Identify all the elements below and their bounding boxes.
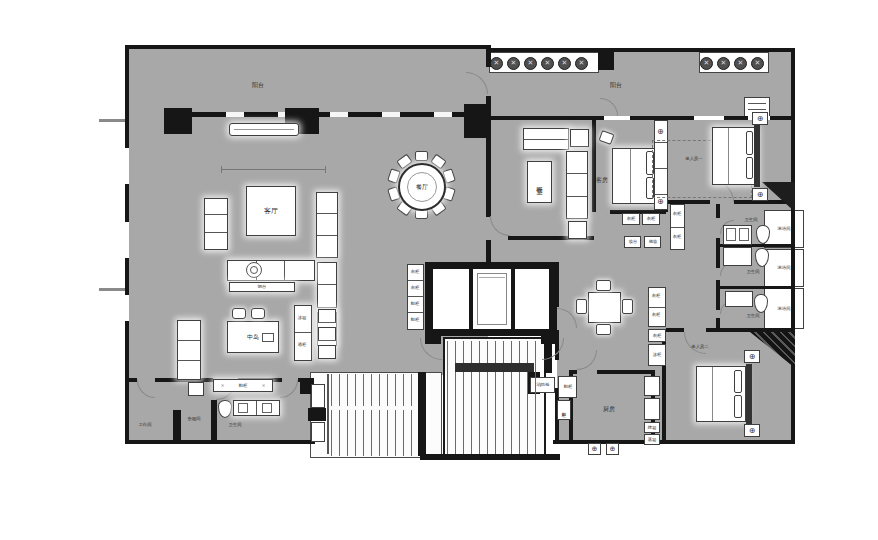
vanity-div [256, 401, 257, 415]
cabinet-line [178, 360, 200, 361]
ceiling-lamp-icon: ⊕ [657, 198, 664, 206]
pillow [734, 370, 742, 393]
shelf-line [317, 213, 337, 214]
shower-2-label: 淋浴间 [778, 266, 791, 270]
planter-icon: ✕ [717, 57, 730, 70]
elder1-headboard [754, 125, 760, 187]
dresser-2-label: 梳妆 [648, 240, 657, 244]
shower-2-inner: 淋浴间 [764, 249, 804, 287]
counter-div [284, 261, 285, 280]
column-balcony-divider [598, 48, 614, 70]
kitchen-tall-unit [644, 376, 660, 396]
wall-x488-c [486, 240, 491, 264]
steamer-label: 蒸箱 [648, 437, 657, 441]
cab-line [408, 312, 423, 313]
ceiling-lamp-icon: ⊕ [757, 115, 764, 123]
dresser-1: 妆台 [624, 236, 641, 248]
wall-top-left [125, 45, 488, 49]
ceiling-lamp-icon: ⊕ [592, 446, 598, 453]
stair-closet [311, 422, 325, 442]
living-room-label: 客厅 [264, 208, 278, 215]
ac-unit-line [748, 103, 766, 104]
island-sink [262, 333, 274, 342]
fridge-wine-column [294, 305, 312, 361]
corr-wardrobe-2-label: 衣柜 [652, 313, 661, 317]
bath2-vanity [723, 247, 752, 266]
breakfast-chair [622, 299, 633, 314]
bed-fold-line [728, 128, 729, 184]
dimension-tick [325, 166, 326, 173]
kitchen-label: 厨房 [603, 406, 615, 412]
corr-wardrobe-3-label: 衣柜 [653, 333, 662, 337]
pillow [746, 131, 753, 155]
cab-line [671, 227, 684, 228]
cabinet-line [178, 340, 200, 341]
bathroom-left-label: 卫生间 [229, 423, 242, 427]
guest-wardrobe-1-label: 衣柜 [627, 217, 636, 221]
guest-wardrobe-1: 衣柜 [622, 213, 640, 225]
tall-cabinet-left [177, 320, 201, 380]
wine-cabinet-label: 酒柜 [298, 343, 307, 347]
cabinet-line [318, 284, 336, 285]
planter-icon: ✕ [734, 57, 747, 70]
wall-bottom-left [125, 440, 315, 444]
corridor-cabinet: 衣柜 [648, 329, 666, 342]
sofa-line [205, 232, 227, 233]
ceiling-lamp-icon: ⊕ [610, 446, 616, 453]
fridge-div [295, 332, 311, 333]
dining-table: 餐厅 [398, 163, 446, 211]
av-corner-table [570, 129, 589, 147]
dining-chair [415, 151, 428, 161]
ceiling-lamp-icon: ⊕ [749, 427, 756, 435]
ceiling-lamp-icon: ⊕ [757, 191, 764, 199]
elder2-nightstand: ⊕ [744, 350, 760, 363]
wall-av-right [592, 118, 596, 212]
sofa-line [567, 196, 587, 197]
bath3-vanity [725, 291, 753, 307]
bathroom-3-label: 卫生间 [747, 314, 760, 318]
av-corner-table [568, 221, 587, 239]
window-slit [125, 222, 129, 258]
floor-plan: 客厅 餐厅 吧台 中岛 冰箱 酒柜 [0, 0, 878, 540]
guest-wardrobe-2-label: 衣柜 [647, 217, 656, 221]
sofa-line [524, 139, 568, 140]
island-stool [232, 308, 246, 319]
planter-icon: ✕ [541, 57, 554, 70]
planter-icon: ✕ [507, 57, 520, 70]
column-1 [164, 108, 192, 134]
elev-cab-label-4: 鞋柜 [411, 318, 420, 322]
pillow [734, 395, 742, 418]
elevator-car-line [479, 277, 505, 278]
corr-wardrobe-1-label: 衣柜 [652, 294, 661, 298]
planter-icon: ✕ [490, 57, 503, 70]
planter-icon: ✕ [751, 57, 764, 70]
bathroom-1-label: 卫生间 [745, 218, 758, 222]
small-unit [318, 309, 336, 323]
steam-oven: 蒸箱 [644, 434, 660, 445]
bathroom-2-label: 卫生间 [747, 270, 760, 274]
wall-top-right [486, 48, 795, 52]
wall-bath-vert-b [716, 238, 720, 268]
side-wardrobe-1-label: 衣柜 [673, 212, 682, 216]
entry-shoe-label: 鞋柜 [239, 383, 248, 387]
oven: 烤箱 [644, 422, 660, 433]
balcony-left-label: 阳台 [252, 82, 264, 88]
wall-stair-divider [418, 372, 426, 456]
bath1-basin [726, 228, 736, 241]
elevator-car [477, 273, 507, 325]
bookshelf [316, 192, 338, 258]
sofa-single [204, 198, 228, 250]
bed-fold-line [630, 149, 631, 203]
elder-room-2-label: 老人房二 [691, 345, 708, 349]
wall-elder2-top-a [666, 328, 684, 332]
lobby-cabinet-label: 鞋柜 [563, 385, 572, 389]
window-slit [125, 148, 129, 184]
dresser-1-label: 妆台 [628, 240, 637, 244]
elev-cab-label-2: 衣柜 [411, 286, 420, 290]
breakfast-chair [596, 280, 611, 291]
oven-label: 烤箱 [648, 425, 657, 429]
stair-closet [311, 384, 325, 408]
wall-kitchen-top-b [597, 370, 655, 374]
bar-counter-label: 吧台 [258, 285, 267, 289]
small-unit [318, 345, 336, 359]
balcony-right-label: 阳台 [610, 82, 622, 88]
island-label: 中岛 [247, 334, 259, 340]
elev-cab-label-1: 衣柜 [411, 270, 420, 274]
sofa-line [205, 214, 227, 215]
exterior-fin [99, 119, 125, 122]
kitchen-shoe-label: 鞋柜 [562, 409, 566, 410]
guest-room-label: 客房 [596, 177, 608, 183]
utility-box: ⊕ [588, 443, 601, 455]
ac-unit-line [748, 109, 766, 110]
kitchen-shoe-cabinet: 鞋柜 [557, 400, 571, 420]
ceiling-lamp-icon: ⊕ [749, 353, 756, 361]
elder2-nightstand: ⊕ [744, 424, 760, 437]
elder2-headboard [746, 364, 752, 424]
x-icon: ✕ [221, 384, 225, 388]
lobby-shoe-cabinet: 鞋柜 [558, 376, 577, 398]
planter-icon: ✕ [700, 57, 713, 70]
wall-bath-vert-c [716, 280, 720, 310]
bar-counter: 吧台 [229, 282, 295, 292]
av-room-label: 视听室 [537, 181, 543, 184]
freezer: 冰柜 [648, 344, 666, 366]
dining-table-inner-ring [407, 172, 437, 202]
av-sofa-right [566, 151, 588, 219]
utility-box: ⊕ [606, 443, 619, 455]
stair-landing [455, 363, 534, 372]
wall-bl-div-1 [173, 410, 181, 441]
shower-3-label: 淋浴间 [778, 306, 791, 310]
vanity-basin [238, 403, 248, 413]
curtain-wall-windows [192, 112, 464, 117]
bed-fold-line [712, 367, 713, 421]
x-icon: ✕ [262, 384, 266, 388]
pillow [746, 157, 753, 179]
side-cabinet [317, 262, 337, 308]
left-stair-treads-upper [331, 374, 417, 406]
breakfast-chair [596, 324, 611, 335]
bath1-basin [739, 228, 749, 241]
stair-wall-block [308, 408, 326, 421]
side-wardrobe-2-label: 衣柜 [673, 235, 682, 239]
sink-inner [250, 266, 258, 274]
guest-wardrobe-2: 衣柜 [642, 213, 660, 225]
cab-line [649, 307, 665, 308]
kitchen-tall-unit [644, 398, 660, 420]
planter-icon: ✕ [558, 57, 571, 70]
wall-stair-bottom [420, 454, 560, 460]
island-stool [251, 308, 265, 319]
wall-bl-div-2 [211, 400, 217, 441]
storage-room-label: 杂物间 [188, 417, 201, 421]
sofa-line [567, 173, 587, 174]
exterior-fin [99, 288, 125, 291]
window-slit [694, 116, 724, 120]
dimension-line [222, 169, 326, 170]
elevator-room-left [433, 269, 469, 329]
main-stair-treads [447, 341, 542, 454]
window-slit [125, 295, 129, 321]
wall-bl-top-a [125, 378, 137, 382]
cab-line [408, 280, 423, 281]
small-unit [318, 327, 336, 341]
storage-unit [188, 382, 204, 396]
shower-3-inner: 淋浴间 [764, 288, 804, 329]
tv-console-line [234, 129, 294, 130]
elder1-nightstand: ⊕ [752, 188, 768, 201]
wall-bath-vert-a [716, 204, 720, 218]
window-slit [604, 116, 630, 120]
wall-kitchen-top-a [569, 370, 577, 374]
ceiling-lamp-icon: ⊕ [657, 128, 664, 136]
planter-icon: ✕ [575, 57, 588, 70]
workroom-label: 工作间 [139, 423, 152, 427]
freezer-label: 冰柜 [653, 353, 662, 357]
dimension-tick [221, 166, 222, 173]
dresser-2: 梳妆 [644, 236, 661, 248]
elevator-room-right [515, 269, 549, 329]
cab-line [408, 296, 423, 297]
elder1-nightstand: ⊕ [752, 112, 768, 125]
breakfast-table [588, 292, 621, 323]
av-rug: 视听室 [527, 161, 552, 203]
vanity-basin [262, 403, 272, 413]
entry-shoe-cabinet: ✕ 鞋柜 ✕ [213, 379, 273, 392]
column-3 [464, 104, 488, 138]
fridge-label: 冰箱 [298, 316, 307, 320]
left-stair-stringer [327, 374, 329, 454]
elder-room-1-label: 老人房一 [685, 157, 702, 161]
kitchen-counter [227, 260, 315, 281]
planter-icon: ✕ [524, 57, 537, 70]
breakfast-chair [576, 299, 587, 314]
shower-1-label: 淋浴间 [778, 227, 791, 231]
left-stair-treads-lower [331, 410, 413, 456]
coffee-table: 客厅 [246, 186, 296, 236]
elev-cab-label-3: 鞋柜 [411, 302, 420, 306]
shower-1-inner: 淋浴间 [764, 210, 804, 248]
shelf-line [317, 235, 337, 236]
